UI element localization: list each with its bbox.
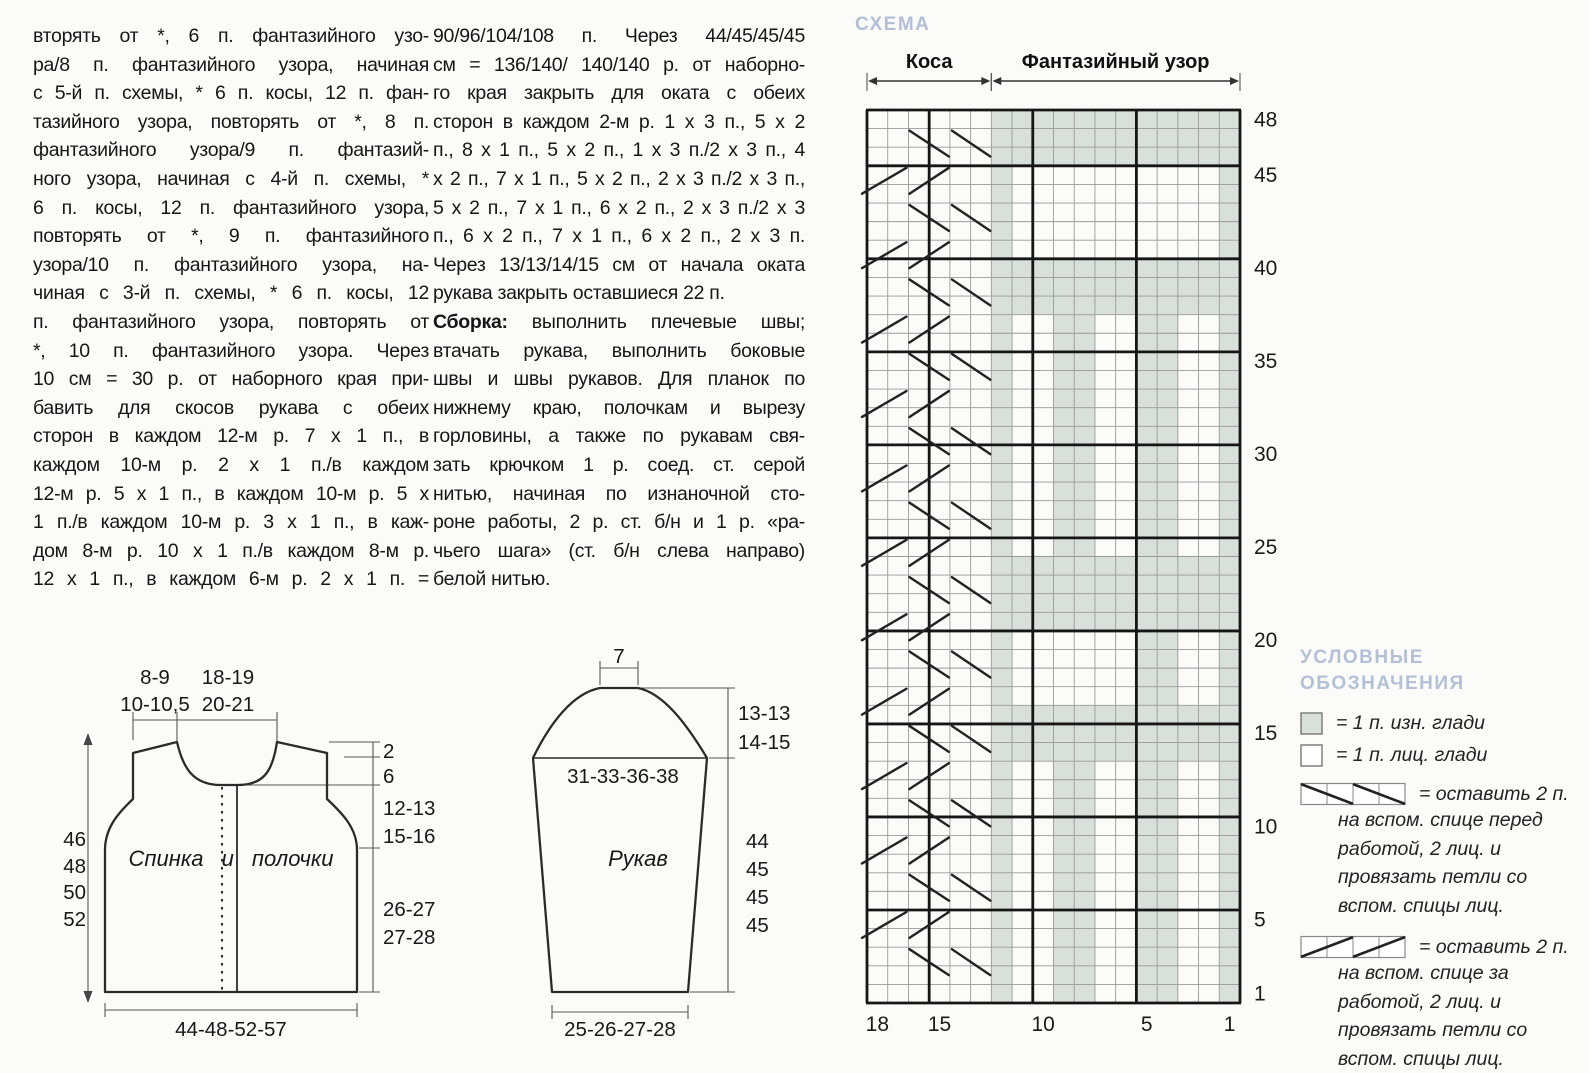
chart-row-number: 48 — [1254, 108, 1277, 131]
text-line: 12-м р. 5 х 1 п., в каждом 10-м р. 5 х — [33, 480, 429, 509]
purl-cell — [1012, 557, 1033, 576]
purl-cell — [1136, 352, 1157, 371]
purl-cell — [1054, 984, 1075, 1003]
chart-stitch-number: 10 — [1031, 1013, 1054, 1036]
purl-cell — [1219, 612, 1240, 631]
purl-cell — [1157, 296, 1178, 315]
cable-symbol — [952, 949, 990, 975]
purl-cell — [1054, 296, 1075, 315]
purl-cell — [1157, 426, 1178, 445]
chart-span-label: Коса — [906, 51, 954, 73]
legend-item-text: вспом. спицы лиц. — [1338, 892, 1586, 921]
chart-row-number: 40 — [1254, 257, 1277, 280]
purl-cell — [991, 873, 1012, 892]
purl-cell — [1157, 966, 1178, 985]
purl-cell — [1219, 315, 1240, 334]
cable-symbol — [862, 689, 906, 715]
purl-cell — [1219, 854, 1240, 873]
chart-row-number: 10 — [1254, 815, 1277, 838]
purl-cell — [1219, 333, 1240, 352]
purl-cell — [1178, 743, 1199, 762]
purl-cell — [1199, 705, 1220, 724]
text-line: бавить для скосов рукава с обеих — [33, 394, 429, 423]
purl-cell — [1136, 817, 1157, 836]
purl-cell — [1157, 277, 1178, 296]
purl-cell — [1199, 594, 1220, 613]
purl-cell — [1219, 370, 1240, 389]
purl-cell — [1136, 259, 1157, 278]
purl-cell — [1074, 538, 1095, 557]
purl-cell — [1074, 743, 1095, 762]
knitting-chart: 4845403530252015105118151051КосаФантазий… — [845, 38, 1305, 1048]
body-side-length-label: 26-27 27-28 — [383, 896, 435, 952]
chart-stitch-number: 5 — [1141, 1013, 1153, 1036]
purl-cell — [1012, 743, 1033, 762]
purl-cell — [1199, 557, 1220, 576]
purl-cell — [1074, 910, 1095, 929]
purl-cell — [1074, 984, 1095, 1003]
purl-cell — [1012, 277, 1033, 296]
cable-front-icon — [1300, 782, 1406, 806]
purl-cell — [1157, 147, 1178, 166]
purl-cell — [1157, 463, 1178, 482]
purl-cell — [991, 277, 1012, 296]
purl-cell — [991, 966, 1012, 985]
purl-cell — [1219, 389, 1240, 408]
purl-cell — [991, 743, 1012, 762]
purl-cell — [1219, 296, 1240, 315]
purl-cell — [1136, 705, 1157, 724]
purl-cell — [991, 463, 1012, 482]
purl-cell — [1074, 705, 1095, 724]
purl-cell — [1054, 594, 1075, 613]
body-armhole-depth-label: 12-13 15-16 — [383, 795, 435, 851]
purl-cell — [1033, 594, 1054, 613]
purl-cell — [1157, 873, 1178, 892]
legend-item-text: на вспом. спице перед — [1338, 806, 1586, 835]
purl-cell — [1136, 557, 1157, 576]
purl-cell — [1219, 984, 1240, 1003]
sleeve-outline — [533, 688, 707, 992]
purl-cell — [991, 594, 1012, 613]
purl-cell — [1157, 724, 1178, 743]
sleeve-length-labels: 44 45 45 45 — [746, 828, 769, 940]
legend-item-text: = оставить 2 п. — [1419, 783, 1569, 806]
purl-cell — [1054, 277, 1075, 296]
cable-symbol — [952, 205, 990, 231]
purl-cell — [1074, 110, 1095, 129]
purl-cell — [1054, 891, 1075, 910]
purl-cell — [1136, 389, 1157, 408]
purl-cell — [991, 724, 1012, 743]
chart-row-number: 30 — [1254, 443, 1277, 466]
purl-cell — [1136, 296, 1157, 315]
purl-cell — [1074, 891, 1095, 910]
purl-cell — [1033, 259, 1054, 278]
purl-cell — [1157, 891, 1178, 910]
purl-cell — [1219, 426, 1240, 445]
text-line: втачать рукава, выполнить боковые — [433, 337, 805, 366]
chart-row-number: 35 — [1254, 350, 1277, 373]
purl-cell — [1012, 705, 1033, 724]
purl-cell — [1033, 557, 1054, 576]
purl-cell — [991, 650, 1012, 669]
purl-cell — [1095, 129, 1116, 148]
purl-cell — [1136, 910, 1157, 929]
purl-cell — [991, 259, 1012, 278]
chart-stitch-number: 15 — [928, 1013, 951, 1036]
purl-cell — [1074, 352, 1095, 371]
purl-cell — [1199, 296, 1220, 315]
purl-cell — [1012, 575, 1033, 594]
purl-cell — [1157, 631, 1178, 650]
purl-cell — [1116, 705, 1137, 724]
chart-section-title: СХЕМА — [855, 12, 930, 38]
purl-cell — [1219, 631, 1240, 650]
purl-cell — [1095, 612, 1116, 631]
purl-cell — [1157, 501, 1178, 520]
purl-cell — [1054, 389, 1075, 408]
text-line: 6 п. косы, 12 п. фантазийного узора, — [33, 194, 429, 223]
purl-cell — [1136, 519, 1157, 538]
purl-cell — [1054, 333, 1075, 352]
purl-cell — [1054, 463, 1075, 482]
purl-cell — [1199, 724, 1220, 743]
chart-span-label: Фантазийный узор — [1022, 51, 1210, 73]
purl-cell — [1136, 147, 1157, 166]
purl-cell — [991, 910, 1012, 929]
purl-cell — [1157, 984, 1178, 1003]
purl-cell — [1136, 575, 1157, 594]
cable-symbol — [952, 726, 990, 752]
purl-cell — [991, 705, 1012, 724]
purl-cell — [1219, 650, 1240, 669]
purl-cell — [1054, 147, 1075, 166]
purl-cell — [1116, 147, 1137, 166]
purl-cell — [1157, 370, 1178, 389]
purl-cell — [1199, 259, 1220, 278]
cable-symbol — [952, 131, 990, 157]
purl-cell — [1074, 575, 1095, 594]
purl-cell — [1136, 798, 1157, 817]
purl-cell — [1033, 743, 1054, 762]
purl-cell — [991, 389, 1012, 408]
purl-cell — [991, 668, 1012, 687]
purl-cell — [1074, 519, 1095, 538]
purl-cell — [1074, 277, 1095, 296]
body-length-labels: 46 48 50 52 — [48, 827, 86, 933]
purl-cell — [1219, 129, 1240, 148]
purl-cell — [1054, 129, 1075, 148]
chart-row-number: 15 — [1254, 722, 1277, 745]
purl-cell — [991, 519, 1012, 538]
cable-symbol — [952, 800, 990, 826]
purl-cell — [1219, 687, 1240, 706]
purl-cell — [1136, 743, 1157, 762]
purl-cell — [991, 836, 1012, 855]
cable-symbol — [952, 652, 990, 678]
purl-cell — [1157, 129, 1178, 148]
sleeve-bottom-width-label: 25-26-27-28 — [552, 1016, 688, 1043]
purl-cell — [1219, 780, 1240, 799]
purl-cell — [991, 110, 1012, 129]
text-line: зать крючком 1 р. соед. ст. серой — [433, 451, 805, 480]
legend-item-text: = 1 п. изн. глади — [1336, 712, 1485, 735]
purl-cell — [1095, 296, 1116, 315]
knit-square-icon — [1300, 744, 1323, 767]
purl-cell — [991, 538, 1012, 557]
purl-cell — [1095, 724, 1116, 743]
purl-cell — [1199, 277, 1220, 296]
text-line: х 2 п., 7 х 1 п., 5 х 2 п., 2 х 3 п./2 х… — [433, 165, 805, 194]
purl-cell — [1199, 110, 1220, 129]
text-line: п., 8 х 1 п., 5 х 2 п., 1 х 3 п./2 х 3 п… — [433, 136, 805, 165]
cable-symbol — [952, 875, 990, 901]
purl-cell — [991, 984, 1012, 1003]
purl-cell — [1219, 724, 1240, 743]
purl-cell — [1178, 277, 1199, 296]
purl-cell — [1178, 557, 1199, 576]
purl-cell — [1219, 705, 1240, 724]
purl-cell — [1074, 296, 1095, 315]
purl-cell — [1199, 147, 1220, 166]
purl-cell — [991, 891, 1012, 910]
purl-cell — [1219, 184, 1240, 203]
purl-cell — [1199, 743, 1220, 762]
legend-item-cable-front: = оставить 2 п. — [1300, 782, 1586, 806]
text-line: горловины, а также по рукавам свя- — [433, 422, 805, 451]
purl-cell — [1054, 929, 1075, 948]
purl-cell — [1033, 705, 1054, 724]
purl-cell — [991, 166, 1012, 185]
purl-cell — [1054, 110, 1075, 129]
purl-cell — [1157, 557, 1178, 576]
purl-cell — [1157, 650, 1178, 669]
body-bottom-width-label: 44-48-52-57 — [105, 1016, 357, 1043]
cable-symbol — [862, 540, 906, 566]
purl-cell — [1157, 612, 1178, 631]
purl-cell — [1157, 110, 1178, 129]
body-piece-name: Спинка и полочки — [118, 846, 344, 872]
legend-item-text: вспом. спицы лиц. — [1338, 1045, 1586, 1073]
purl-cell — [1136, 463, 1157, 482]
purl-cell — [1074, 873, 1095, 892]
purl-cell — [1054, 482, 1075, 501]
cable-symbol — [862, 838, 906, 864]
purl-cell — [1219, 798, 1240, 817]
purl-cell — [1054, 612, 1075, 631]
purl-cell — [1095, 259, 1116, 278]
purl-cell — [1095, 147, 1116, 166]
purl-cell — [1054, 817, 1075, 836]
legend-item-purl: = 1 п. изн. глади — [1300, 712, 1586, 735]
purl-cell — [1136, 780, 1157, 799]
cable-symbol — [862, 317, 906, 343]
legend-title-line2: ОБОЗНАЧЕНИЯ — [1300, 671, 1586, 697]
purl-cell — [1219, 501, 1240, 520]
purl-cell — [1074, 836, 1095, 855]
text-line: с 5-й п. схемы, * 6 п. косы, 12 п. фан- — [33, 79, 429, 108]
purl-cell — [1136, 929, 1157, 948]
purl-cell — [1074, 501, 1095, 520]
text-line: роне работы, 2 р. ст. б/н и 1 р. «ра- — [433, 508, 805, 537]
purl-cell — [1095, 705, 1116, 724]
purl-cell — [1136, 966, 1157, 985]
cable-symbol — [862, 242, 906, 268]
purl-cell — [1074, 780, 1095, 799]
purl-cell — [1074, 147, 1095, 166]
dimension-lines — [552, 661, 735, 1019]
purl-cell — [1054, 370, 1075, 389]
chart-row-number: 1 — [1254, 983, 1266, 1006]
purl-cell — [1095, 575, 1116, 594]
purl-cell — [1095, 110, 1116, 129]
purl-cell — [1219, 575, 1240, 594]
purl-cell — [1219, 445, 1240, 464]
purl-cell — [1157, 780, 1178, 799]
purl-cell — [1178, 296, 1199, 315]
purl-cell — [1157, 594, 1178, 613]
cable-symbol — [952, 354, 990, 380]
text-line: нитью, начиная по изнаночной сто- — [433, 480, 805, 509]
text-line: *, 10 п. фантазийного узора. Через — [33, 337, 429, 366]
purl-cell — [1074, 315, 1095, 334]
legend-item-text: на вспом. спице за — [1338, 959, 1586, 988]
purl-cell — [1157, 445, 1178, 464]
purl-cell — [1074, 724, 1095, 743]
legend-item-text: = 1 п. лиц. глади — [1336, 744, 1487, 767]
text-line: 5 х 2 п., 7 х 1 п., 6 х 2 п., 2 х 3 п./2… — [433, 194, 805, 223]
purl-cell — [1219, 408, 1240, 427]
legend-item-cable-back: = оставить 2 п. — [1300, 935, 1586, 959]
purl-cell — [1136, 947, 1157, 966]
text-line: ра/8 п. фантазийного узора, начиная — [33, 51, 429, 80]
purl-cell — [991, 557, 1012, 576]
purl-cell — [1033, 296, 1054, 315]
text-line: каждом 10-м р. 2 х 1 п./в каждом — [33, 451, 429, 480]
purl-cell — [991, 947, 1012, 966]
purl-cell — [991, 352, 1012, 371]
purl-cell — [1136, 277, 1157, 296]
purl-cell — [991, 817, 1012, 836]
text-line: 90/96/104/108 п. Через 44/45/45/45 — [433, 22, 805, 51]
purl-cell — [1074, 594, 1095, 613]
purl-cell — [1136, 650, 1157, 669]
purl-cell — [1095, 277, 1116, 296]
purl-cell — [1136, 370, 1157, 389]
purl-cell — [1012, 259, 1033, 278]
purl-cell — [1219, 910, 1240, 929]
purl-cell — [1054, 761, 1075, 780]
purl-cell — [1074, 817, 1095, 836]
purl-cell — [1178, 129, 1199, 148]
purl-cell — [1136, 445, 1157, 464]
purl-cell — [1054, 315, 1075, 334]
purl-cell — [1136, 891, 1157, 910]
purl-cell — [1157, 947, 1178, 966]
purl-cell — [1136, 110, 1157, 129]
purl-cell — [1136, 129, 1157, 148]
purl-cell — [1074, 463, 1095, 482]
purl-cell — [1219, 222, 1240, 241]
purl-cell — [1033, 724, 1054, 743]
purl-cell — [1033, 147, 1054, 166]
chart-stitch-number: 1 — [1224, 1013, 1236, 1036]
purl-cell — [1012, 724, 1033, 743]
text-line: вторять от *, 6 п. фантазийного узо- — [33, 22, 429, 51]
purl-cell — [1054, 836, 1075, 855]
purl-cell — [1012, 110, 1033, 129]
purl-cell — [1074, 557, 1095, 576]
text-line: фантазийного узора/9 п. фантазий- — [33, 136, 429, 165]
purl-cell — [1219, 110, 1240, 129]
purl-cell — [1116, 110, 1137, 129]
purl-cell — [1116, 594, 1137, 613]
purl-cell — [991, 687, 1012, 706]
purl-cell — [1136, 333, 1157, 352]
purl-cell — [991, 370, 1012, 389]
purl-cell — [1012, 129, 1033, 148]
legend-item-knit: = 1 п. лиц. глади — [1300, 744, 1586, 767]
cable-back-icon — [1300, 935, 1406, 959]
purl-cell — [1219, 277, 1240, 296]
purl-cell — [1219, 147, 1240, 166]
purl-cell — [1054, 798, 1075, 817]
purl-cell — [1199, 129, 1220, 148]
text-line: белой нитью. — [433, 565, 805, 594]
purl-cell — [1054, 575, 1075, 594]
purl-cell — [1219, 259, 1240, 278]
purl-cell — [1178, 575, 1199, 594]
purl-cell — [1219, 743, 1240, 762]
legend: УСЛОВНЫЕ ОБОЗНАЧЕНИЯ = 1 п. изн. глади =… — [1300, 645, 1586, 1073]
cable-symbol — [862, 465, 906, 491]
purl-cell — [1136, 631, 1157, 650]
purl-cell — [1054, 538, 1075, 557]
purl-cell — [991, 129, 1012, 148]
purl-cell — [1136, 761, 1157, 780]
purl-cell — [1054, 705, 1075, 724]
purl-cell — [1136, 315, 1157, 334]
purl-cell — [991, 222, 1012, 241]
purl-cell — [1054, 445, 1075, 464]
text-line: Через 13/13/14/15 см от начала оката — [433, 251, 805, 280]
purl-cell — [991, 780, 1012, 799]
purl-cell — [1136, 482, 1157, 501]
purl-cell — [1157, 259, 1178, 278]
text-line: 12 х 1 п., в каждом 6-м р. 2 х 1 п. = — [33, 565, 429, 594]
purl-cell — [991, 333, 1012, 352]
text-line: 1 п./в каждом 10-м р. 3 х 1 п., в каж- — [33, 508, 429, 537]
article-column-1: вторять от *, 6 п. фантазийного узо-ра/8… — [33, 22, 429, 594]
text-line: п., 6 х 2 п., 7 х 1 п., 6 х 2 п., 2 х 3 … — [433, 222, 805, 251]
purl-cell — [1157, 910, 1178, 929]
purl-cell — [1157, 798, 1178, 817]
purl-cell — [1157, 538, 1178, 557]
purl-cell — [1074, 333, 1095, 352]
purl-cell — [1178, 705, 1199, 724]
purl-cell — [1012, 612, 1033, 631]
sleeve-cap-height-label: 13-13 14-15 — [738, 699, 790, 757]
cable-symbol — [952, 577, 990, 603]
purl-cell — [1219, 947, 1240, 966]
purl-cell — [1074, 612, 1095, 631]
purl-cell — [1054, 743, 1075, 762]
purl-cell — [1219, 203, 1240, 222]
purl-cell — [1012, 147, 1033, 166]
purl-cell — [991, 408, 1012, 427]
purl-cell — [1136, 594, 1157, 613]
